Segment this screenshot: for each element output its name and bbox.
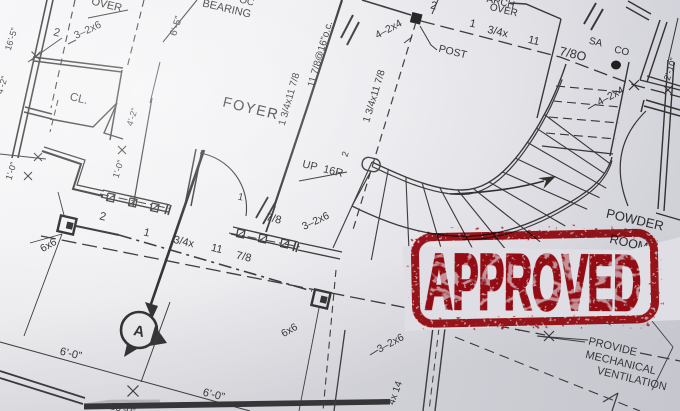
svg-text:APPROVED: APPROVED <box>425 237 642 327</box>
